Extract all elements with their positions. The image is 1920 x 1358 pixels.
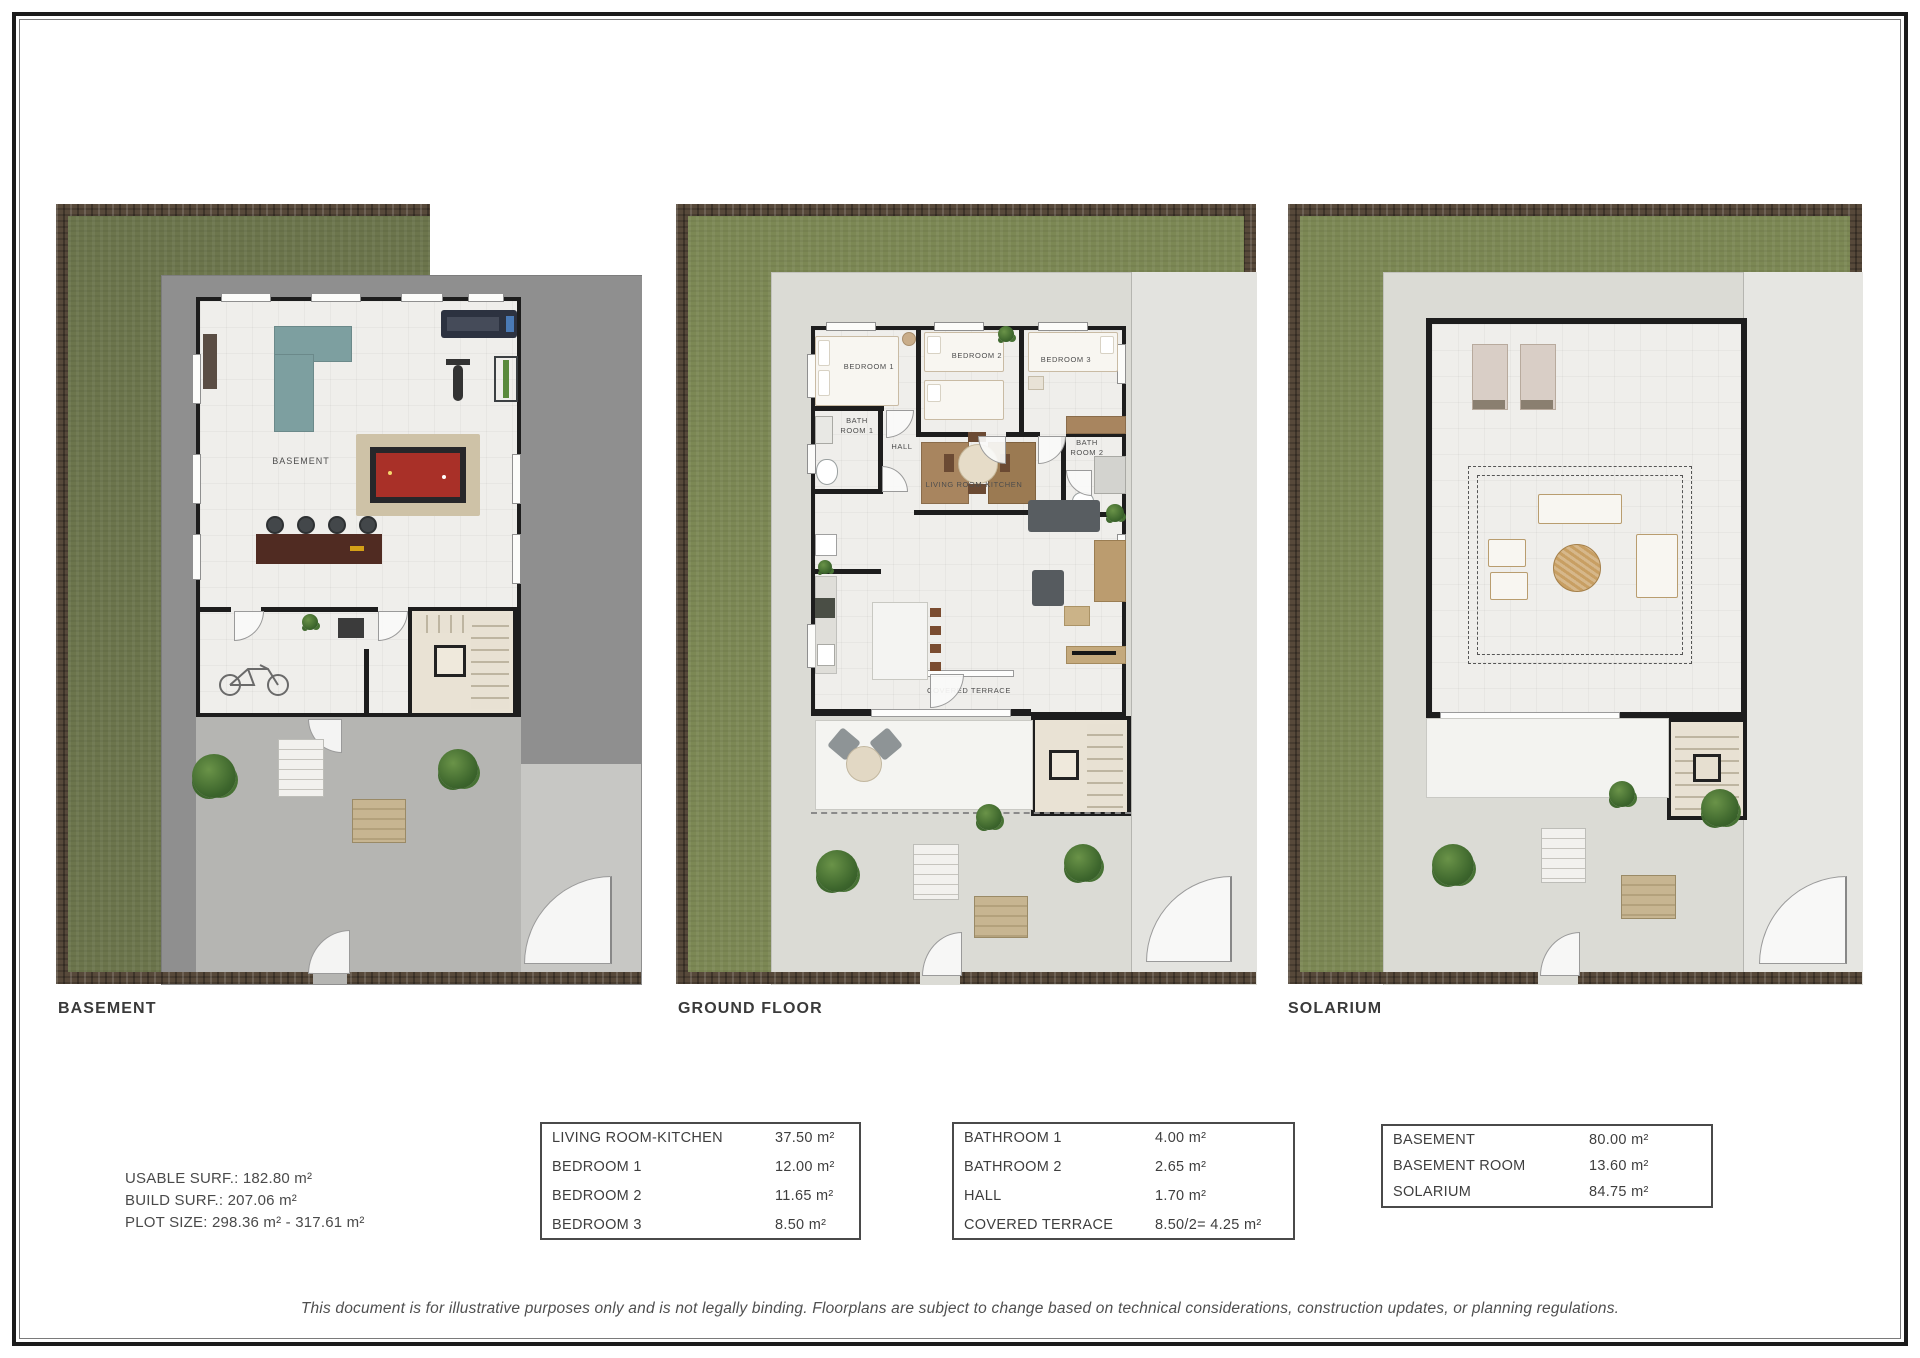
bush (1064, 844, 1102, 882)
window (807, 444, 816, 474)
stair-landing (434, 645, 466, 677)
outdoor-steps (1541, 828, 1586, 883)
table-row: COVERED TERRACE8.50/2= 4.25 m² (954, 1211, 1293, 1240)
table-row: BATHROOM 22.65 m² (954, 1153, 1293, 1182)
row-label: BEDROOM 3 (552, 1217, 642, 1233)
area-table-levels: BASEMENT80.00 m² BASEMENT ROOM13.60 m² S… (1381, 1124, 1713, 1208)
wall-segment (364, 649, 369, 713)
table-row: SOLARIUM84.75 m² (1383, 1178, 1711, 1204)
summary-usable-surface: USABLE SURF.: 182.80 m² (125, 1170, 312, 1187)
row-label: COVERED TERRACE (964, 1217, 1113, 1233)
bush (438, 749, 478, 789)
area-table-rooms: LIVING ROOM-KITCHEN37.50 m² BEDROOM 112.… (540, 1122, 861, 1240)
coffee-table (1064, 606, 1090, 626)
tv-console (1066, 646, 1126, 664)
area-table-baths: BATHROOM 14.00 m² BATHROOM 22.65 m² HALL… (952, 1122, 1295, 1240)
window (512, 534, 521, 584)
window (934, 322, 984, 331)
wall-shelf (203, 334, 217, 389)
summary-plot-size: PLOT SIZE: 298.36 m² - 317.61 m² (125, 1214, 365, 1231)
basement-plan: BASEMENT (56, 204, 641, 984)
shower (1094, 456, 1126, 494)
outdoor-steps (278, 739, 324, 797)
window (192, 354, 201, 404)
window (401, 293, 443, 302)
wall-segment (815, 489, 881, 494)
bar-stool (266, 516, 284, 534)
billiard-ball (442, 475, 446, 479)
stove (815, 598, 835, 618)
bush (192, 754, 236, 798)
row-value: 8.50/2= 4.25 m² (1155, 1217, 1261, 1233)
wall-segment (1009, 709, 1031, 716)
wall-segment (1019, 326, 1024, 436)
sink (815, 416, 833, 444)
bike-body (453, 365, 463, 401)
pillow (927, 384, 941, 402)
stair-landing (1693, 754, 1721, 782)
island-stool (930, 626, 941, 635)
room-label-bedroom2: BEDROOM 2 (942, 351, 1012, 361)
wall-segment (261, 607, 378, 612)
row-label: SOLARIUM (1393, 1184, 1471, 1200)
gym-bench-pad (503, 360, 509, 398)
table-row: BEDROOM 211.65 m² (542, 1182, 859, 1211)
treadmill-display (506, 316, 514, 332)
bar-stool (328, 516, 346, 534)
row-value: 2.65 m² (1155, 1159, 1206, 1175)
room-label-basement: BASEMENT (231, 456, 371, 468)
window (221, 293, 271, 302)
island-stool (930, 608, 941, 617)
bar-stool (297, 516, 315, 534)
window (468, 293, 504, 302)
floorplan-document: { "page": { "disclaimer": "This document… (0, 0, 1920, 1358)
room-label-hall: HALL (884, 442, 920, 452)
disclaimer: This document is for illustrative purpos… (0, 1300, 1920, 1318)
row-label: BEDROOM 1 (552, 1159, 642, 1175)
table-row: HALL1.70 m² (954, 1182, 1293, 1211)
bicycle-icon (216, 659, 301, 697)
wall-segment (914, 510, 1038, 515)
window (1038, 322, 1088, 331)
billiard-ball (388, 471, 392, 475)
stair-treads (471, 615, 509, 709)
tv (1072, 651, 1116, 655)
pillow (927, 336, 941, 354)
pillow (818, 370, 830, 396)
row-value: 80.00 m² (1589, 1132, 1649, 1148)
row-label: BATHROOM 1 (964, 1130, 1062, 1146)
row-value: 37.50 m² (775, 1130, 835, 1146)
table-row: BASEMENT80.00 m² (1383, 1126, 1711, 1152)
stairwell (408, 607, 517, 717)
plant (818, 560, 832, 574)
window (1117, 344, 1126, 384)
plant (1106, 504, 1124, 522)
stairwell (1031, 716, 1131, 816)
summary-build-surface: BUILD SURF.: 207.06 m² (125, 1192, 297, 1209)
table-row: BEDROOM 112.00 m² (542, 1153, 859, 1182)
armchair (1032, 570, 1064, 606)
bar-stool (359, 516, 377, 534)
bar-brand-dot (350, 546, 364, 551)
bush (1432, 844, 1474, 886)
garden-bench (974, 896, 1028, 938)
plan-caption-ground-floor: GROUND FLOOR (678, 1000, 823, 1018)
outdoor-steps (913, 844, 959, 900)
bush (816, 850, 858, 892)
toilet (816, 459, 838, 485)
plant (998, 326, 1014, 342)
room-label-bathroom2: BATH ROOM 2 (1066, 438, 1108, 458)
row-value: 13.60 m² (1589, 1158, 1649, 1174)
wardrobe (1066, 416, 1126, 434)
side-table (1028, 376, 1044, 390)
bush (1609, 781, 1635, 807)
room-label-bathroom1: BATH ROOM 1 (836, 416, 878, 436)
row-label: BASEMENT ROOM (1393, 1158, 1526, 1174)
pillow (1100, 336, 1114, 354)
sun-lounger (1472, 344, 1508, 410)
row-value: 8.50 m² (775, 1217, 826, 1233)
row-value: 84.75 m² (1589, 1184, 1649, 1200)
outdoor-chaise (1636, 534, 1678, 598)
row-label: BEDROOM 2 (552, 1188, 642, 1204)
sliding-door (871, 709, 1011, 717)
exercise-bike (446, 359, 470, 403)
window (512, 454, 521, 504)
room-label-living-kitchen: LIVING ROOM-KITCHEN (916, 480, 1032, 490)
lounger-foot (1521, 400, 1553, 409)
row-value: 1.70 m² (1155, 1188, 1206, 1204)
table-row: LIVING ROOM-KITCHEN37.50 m² (542, 1124, 859, 1153)
row-label: BATHROOM 2 (964, 1159, 1062, 1175)
pillow (818, 340, 830, 366)
window (192, 534, 201, 580)
outdoor-chair (1490, 572, 1528, 600)
round-table (1553, 544, 1601, 592)
plan-caption-solarium: SOLARIUM (1288, 1000, 1382, 1018)
gym-bench (494, 356, 518, 402)
wall-segment (916, 326, 921, 436)
window (826, 322, 876, 331)
row-label: HALL (964, 1188, 1001, 1204)
sink (817, 644, 835, 666)
bistro-table (846, 746, 882, 782)
bar-counter (256, 534, 382, 564)
solarium-plan (1288, 204, 1862, 984)
utility-box (338, 618, 364, 638)
outdoor-chair (1488, 539, 1526, 567)
table-row: BEDROOM 38.50 m² (542, 1211, 859, 1240)
stair-treads (416, 615, 472, 633)
row-value: 4.00 m² (1155, 1130, 1206, 1146)
window (192, 454, 201, 504)
wall-segment (1006, 432, 1040, 437)
treadmill-belt (447, 317, 499, 331)
bush (1701, 789, 1739, 827)
room-label-bedroom1: BEDROOM 1 (834, 362, 904, 372)
side-concrete-column (1131, 272, 1257, 984)
washer (815, 534, 837, 556)
stair-treads (1087, 724, 1123, 810)
bush (976, 804, 1002, 830)
row-label: LIVING ROOM-KITCHEN (552, 1130, 723, 1146)
plot-dashed-line (811, 812, 1131, 814)
garden-bench (352, 799, 406, 843)
window (311, 293, 361, 302)
kitchen-island (872, 602, 928, 680)
outdoor-sofa (1538, 494, 1622, 524)
soil-border-bottom (676, 972, 1256, 984)
ground-floor-plan: BEDROOM 1 BEDROOM 2 BEDROOM 3 HALL BATH … (676, 204, 1256, 984)
row-value: 12.00 m² (775, 1159, 835, 1175)
treadmill (441, 310, 517, 338)
stair-landing (1049, 750, 1079, 780)
teal-sofa (274, 354, 314, 432)
billiard-table (370, 447, 466, 503)
lounger-foot (1473, 400, 1505, 409)
plan-caption-basement: BASEMENT (58, 1000, 157, 1018)
row-value: 11.65 m² (775, 1188, 834, 1204)
sofa (1028, 500, 1100, 532)
island-stool (930, 644, 941, 653)
dining-chair (944, 454, 954, 472)
row-label: BASEMENT (1393, 1132, 1475, 1148)
sun-lounger (1520, 344, 1556, 410)
tv-bench (1094, 540, 1126, 602)
wall-segment (815, 406, 884, 411)
wall-segment (200, 607, 231, 612)
garden-bench (1621, 875, 1676, 919)
table-row: BATHROOM 14.00 m² (954, 1124, 1293, 1153)
side-table (902, 332, 916, 346)
table-row: BASEMENT ROOM13.60 m² (1383, 1152, 1711, 1178)
wall-segment (815, 709, 873, 716)
island-stool (930, 662, 941, 671)
room-label-bedroom3: BEDROOM 3 (1034, 355, 1098, 365)
plant (302, 614, 318, 630)
